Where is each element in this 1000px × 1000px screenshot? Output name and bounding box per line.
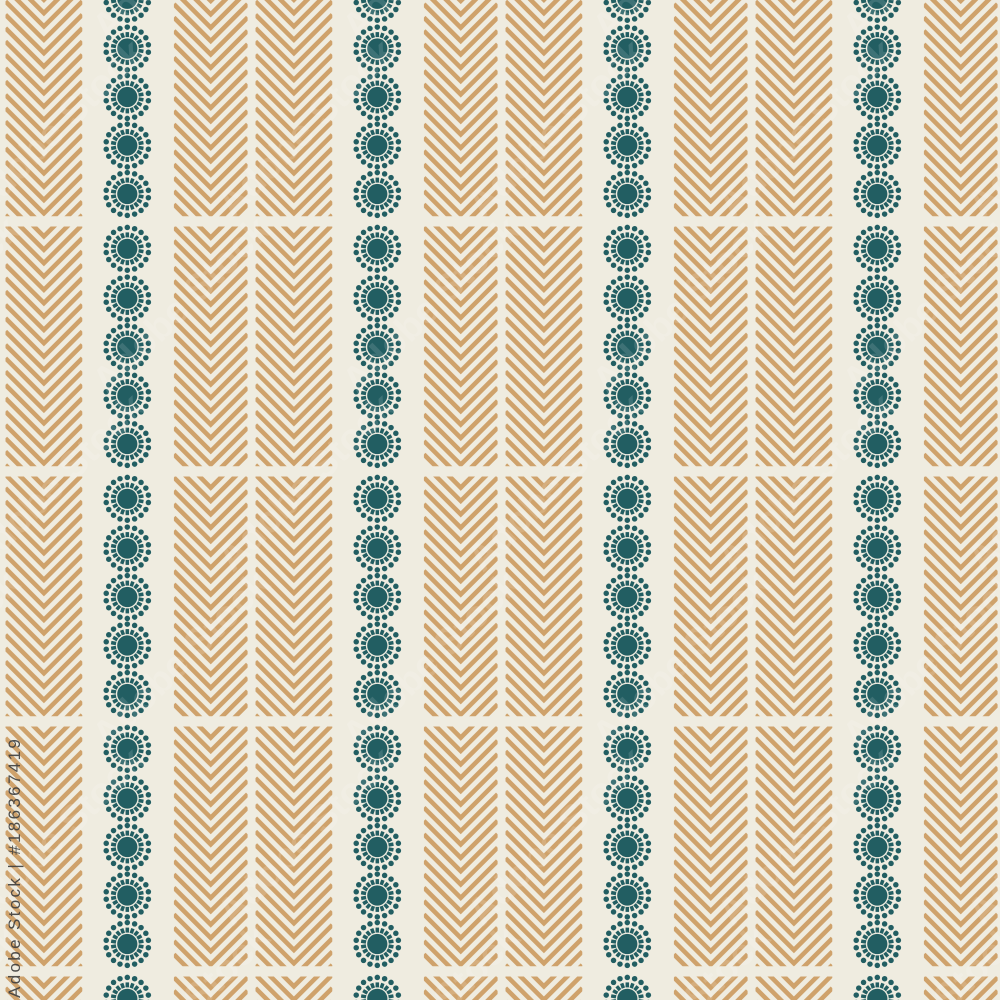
svg-text:Adobe Stock | #186367419: Adobe Stock | #186367419 [5,737,24,998]
